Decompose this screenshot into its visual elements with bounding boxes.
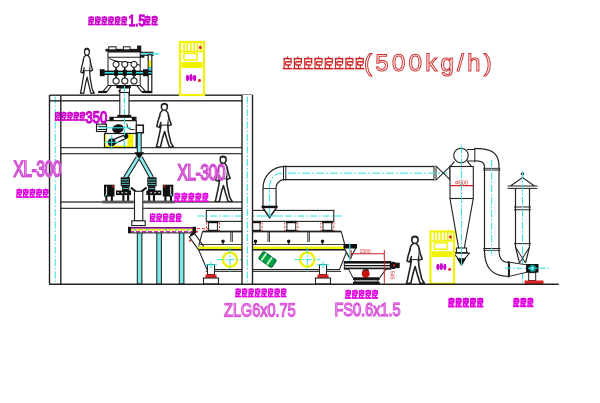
svg-text:XL-300: XL-300 [14,158,62,182]
svg-text:545: 545 [388,271,394,280]
svg-text:Φ500: Φ500 [455,180,468,186]
svg-text:FS0.6x1.5: FS0.6x1.5 [335,301,401,321]
svg-text:350: 350 [86,108,108,127]
svg-text:XL-300: XL-300 [178,161,226,185]
svg-text:1500: 1500 [360,249,371,255]
svg-text:ZLG6x0.75: ZLG6x0.75 [224,301,296,321]
svg-text:(500kg/h): (500kg/h) [364,50,495,77]
svg-text:1.5: 1.5 [129,11,146,29]
